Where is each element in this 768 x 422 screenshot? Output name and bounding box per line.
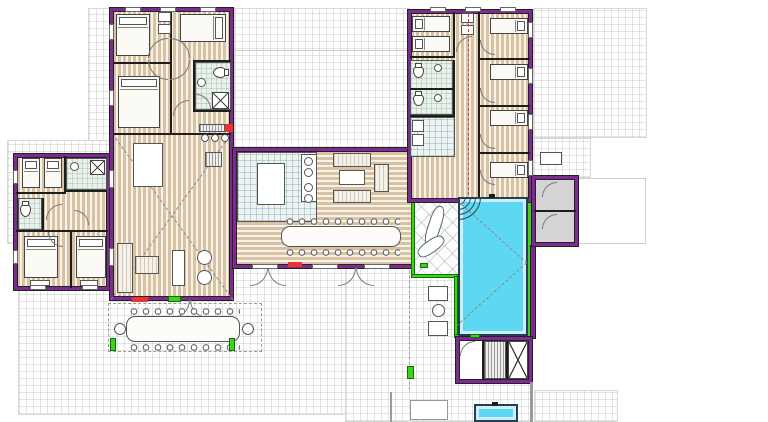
interior-wall <box>410 56 455 58</box>
hob <box>304 157 313 166</box>
interior-wall <box>70 232 72 288</box>
washer <box>412 134 424 146</box>
ottoman <box>135 256 159 274</box>
interior-wall <box>482 341 484 379</box>
interior-wall <box>453 60 455 115</box>
kitchen-island <box>257 163 285 205</box>
red-marker <box>132 297 148 302</box>
interior-wall <box>478 58 530 60</box>
window <box>13 250 18 264</box>
sink <box>434 94 442 102</box>
green-door-marker <box>420 263 428 268</box>
outdoor-dining-chairs <box>128 343 240 352</box>
bed <box>76 236 106 278</box>
patio-ne <box>533 8 647 138</box>
interior-wall <box>64 156 66 192</box>
window <box>109 170 114 188</box>
interior-wall <box>453 12 455 58</box>
pergola-post <box>110 338 116 351</box>
window <box>528 22 533 38</box>
window <box>109 248 114 266</box>
window <box>109 24 114 40</box>
shower <box>212 92 229 109</box>
bed <box>412 36 450 52</box>
sink <box>197 78 206 87</box>
window <box>430 7 446 12</box>
end-chair <box>242 323 254 335</box>
pool-marker <box>489 194 495 198</box>
shelf <box>205 152 222 167</box>
kitchen-island <box>133 143 163 187</box>
window <box>200 7 216 12</box>
patio-side-table <box>540 152 562 165</box>
interior-wall <box>534 210 576 212</box>
interior-wall <box>66 190 107 192</box>
window <box>528 114 533 130</box>
interior-wall <box>478 105 530 107</box>
green-door-marker <box>470 334 480 338</box>
shower-room <box>484 341 506 379</box>
sink <box>434 64 442 72</box>
sofa <box>117 243 133 293</box>
bed <box>490 64 528 80</box>
bed <box>412 16 450 32</box>
garden-wall <box>530 382 533 422</box>
dining-table <box>281 226 401 247</box>
red-marker <box>288 262 302 267</box>
annex-terrace-line <box>578 178 646 244</box>
hob <box>221 134 229 142</box>
washer <box>412 120 424 132</box>
bed <box>118 76 160 128</box>
outdoor-dining-chairs <box>128 307 240 316</box>
dining-chairs <box>284 217 400 226</box>
sofa <box>333 153 371 167</box>
window <box>312 264 338 269</box>
hob <box>304 168 313 177</box>
interior-wall <box>478 152 530 154</box>
bed <box>22 158 40 188</box>
window <box>13 170 18 184</box>
floor-plan-canvas <box>0 0 768 422</box>
boundary-wall <box>531 246 535 338</box>
armchair <box>374 164 389 192</box>
tv-console <box>172 250 185 286</box>
hob <box>201 134 209 142</box>
armchair <box>197 250 212 265</box>
plant-room <box>508 341 528 379</box>
interior-wall <box>410 88 453 90</box>
interior-wall <box>193 60 231 62</box>
window <box>528 160 533 176</box>
patio-chair <box>428 321 448 336</box>
glass-wall <box>411 274 458 278</box>
window <box>500 7 516 12</box>
pergola-post <box>229 338 235 351</box>
bed <box>180 14 226 42</box>
end-chair <box>114 323 126 335</box>
interior-wall <box>16 192 66 194</box>
hob <box>211 134 219 142</box>
interior-wall <box>410 115 455 117</box>
bed <box>116 14 150 56</box>
pool-marker <box>492 402 498 406</box>
plunge-pool <box>474 404 518 422</box>
bed <box>490 18 528 34</box>
sun-lounger <box>410 400 448 420</box>
interior-wall <box>193 110 231 112</box>
coffee-table <box>339 170 365 185</box>
sofa <box>333 190 371 203</box>
patio-table <box>432 304 445 317</box>
green-door-marker <box>168 296 181 302</box>
bed <box>490 110 528 126</box>
armchair <box>197 270 212 285</box>
toilet <box>213 67 226 78</box>
courtyard-inner-line <box>234 50 410 148</box>
sink <box>70 162 79 171</box>
window <box>528 68 533 84</box>
window <box>465 7 481 12</box>
glass-wall <box>411 201 415 277</box>
bed <box>44 158 62 188</box>
hob <box>304 183 313 192</box>
patio-chair <box>428 286 448 301</box>
outdoor-dining-table <box>126 316 240 342</box>
dining-chairs <box>284 248 400 257</box>
interior-wall <box>506 341 508 379</box>
shower <box>90 160 105 175</box>
interior-wall <box>193 62 195 112</box>
window <box>364 264 390 269</box>
red-marker <box>225 124 233 132</box>
garden-wall <box>390 392 392 422</box>
patio-se-sliver <box>534 390 618 422</box>
hob <box>304 194 313 203</box>
window <box>160 7 176 12</box>
window <box>30 285 46 290</box>
pergola-post <box>407 366 414 379</box>
closet <box>158 24 171 34</box>
counter <box>199 124 225 132</box>
window <box>109 90 114 106</box>
window <box>252 264 278 269</box>
interior-wall <box>42 198 44 230</box>
window <box>82 285 98 290</box>
window <box>125 7 141 12</box>
closet <box>158 12 171 22</box>
bed <box>490 162 528 178</box>
